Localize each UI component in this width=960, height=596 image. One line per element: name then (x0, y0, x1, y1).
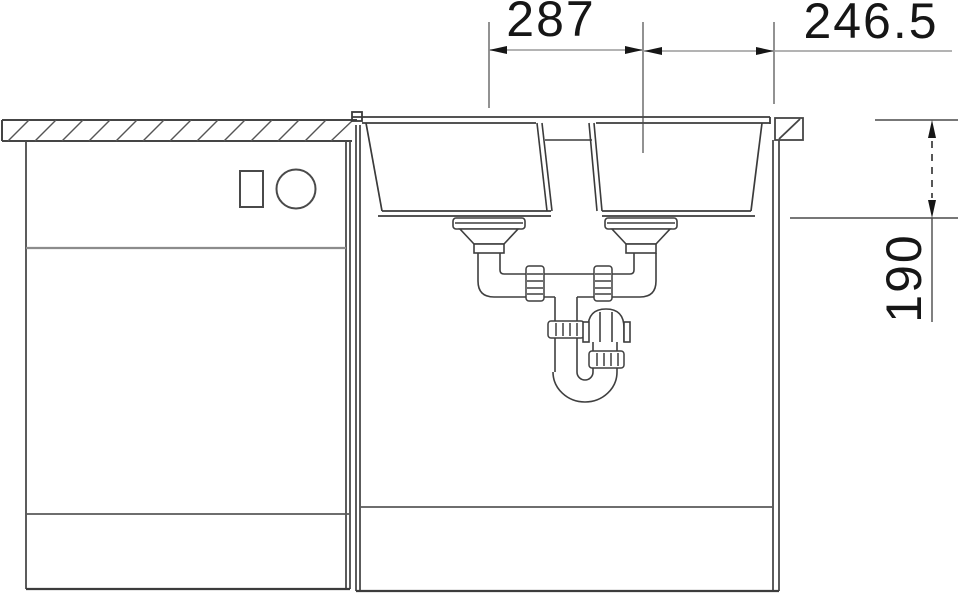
trap-u-inner (577, 372, 593, 380)
drain-elbow-outer (640, 253, 656, 297)
connector-pipe (494, 274, 640, 297)
trap-nut (548, 321, 584, 338)
bowl-divider (537, 123, 602, 211)
right-drain (605, 218, 677, 297)
right-cabinet (356, 125, 779, 591)
dimension-190: 190 (790, 120, 958, 323)
control-round-knob (277, 170, 316, 209)
drain-elbow-outer (478, 253, 494, 297)
drain-elbow-inner (630, 253, 634, 274)
left-drain (453, 218, 525, 297)
outlet-elbow (583, 309, 630, 342)
dim-arrow-right-icon (625, 46, 643, 54)
outlet-dome (588, 309, 624, 342)
outlet-coupling (589, 351, 624, 368)
pipe-coupling-left (526, 266, 544, 301)
tailpiece (626, 244, 656, 253)
countertop-left (2, 120, 357, 141)
control-rect-knob (240, 171, 263, 207)
outlet-tab-right (624, 322, 630, 342)
siphon-trap (553, 297, 617, 402)
dimension-label-246-5: 246.5 (803, 0, 938, 49)
sink-installation-diagram: 287 246.5 190 (0, 0, 960, 596)
dim-arrow-down-icon (928, 200, 936, 218)
sink-rim (352, 112, 770, 124)
cabinet-controls (240, 170, 316, 209)
outlet-tab-left (583, 322, 589, 342)
trap-u-outer (553, 372, 617, 402)
technical-drawing-canvas: 287 246.5 190 (0, 0, 960, 596)
right-bowl (602, 123, 762, 216)
tailpiece (474, 244, 504, 253)
dimension-label-190: 190 (876, 233, 932, 322)
pipe-coupling-right (594, 266, 612, 301)
dim-arrow-right-icon (756, 47, 774, 55)
dim-arrow-left-icon (644, 47, 662, 55)
dimension-246-5: 246.5 (643, 0, 952, 104)
strainer-cup (612, 229, 670, 244)
left-bowl (366, 123, 551, 216)
countertop-right (775, 118, 803, 140)
countertop-hatching (8, 120, 352, 141)
strainer-cup (460, 229, 518, 244)
dim-arrow-up-icon (928, 120, 936, 138)
dim-arrow-left-icon (489, 46, 507, 54)
dimension-label-287: 287 (506, 0, 595, 47)
drain-elbow-inner (500, 253, 504, 274)
dimension-287: 287 (489, 0, 643, 153)
